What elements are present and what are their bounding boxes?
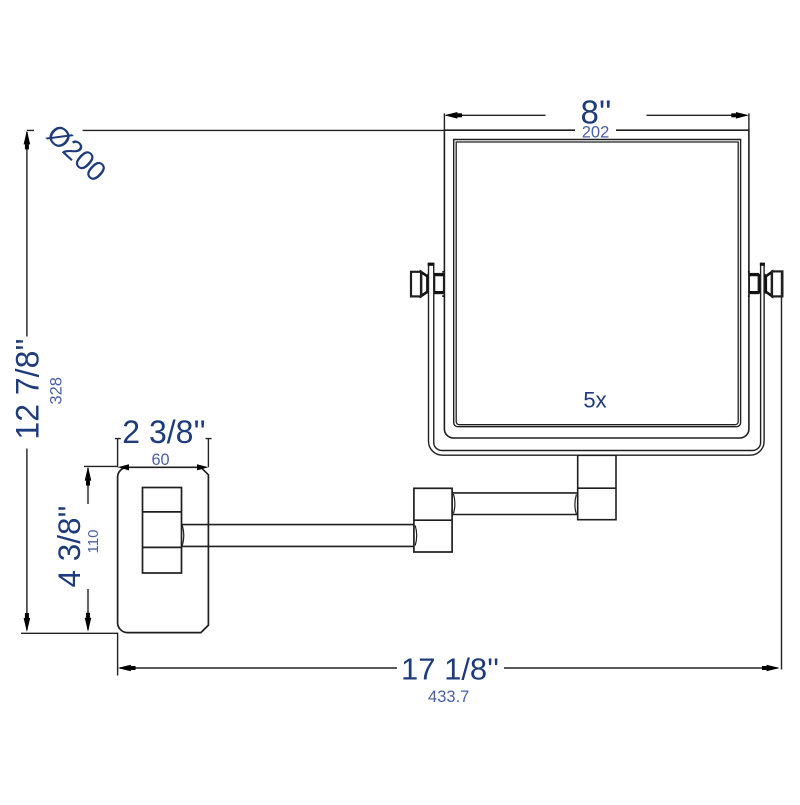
svg-text:12 7/8'': 12 7/8'' [10, 338, 46, 439]
svg-text:110: 110 [85, 530, 102, 554]
svg-text:2 3/8'': 2 3/8'' [122, 414, 205, 450]
svg-text:60: 60 [151, 451, 169, 469]
svg-text:202: 202 [582, 123, 610, 141]
svg-text:4 3/8'': 4 3/8'' [51, 505, 87, 587]
svg-text:5x: 5x [583, 388, 606, 413]
svg-text:433.7: 433.7 [428, 688, 469, 706]
svg-text:328: 328 [47, 377, 65, 405]
svg-text:17 1/8'': 17 1/8'' [401, 652, 499, 687]
